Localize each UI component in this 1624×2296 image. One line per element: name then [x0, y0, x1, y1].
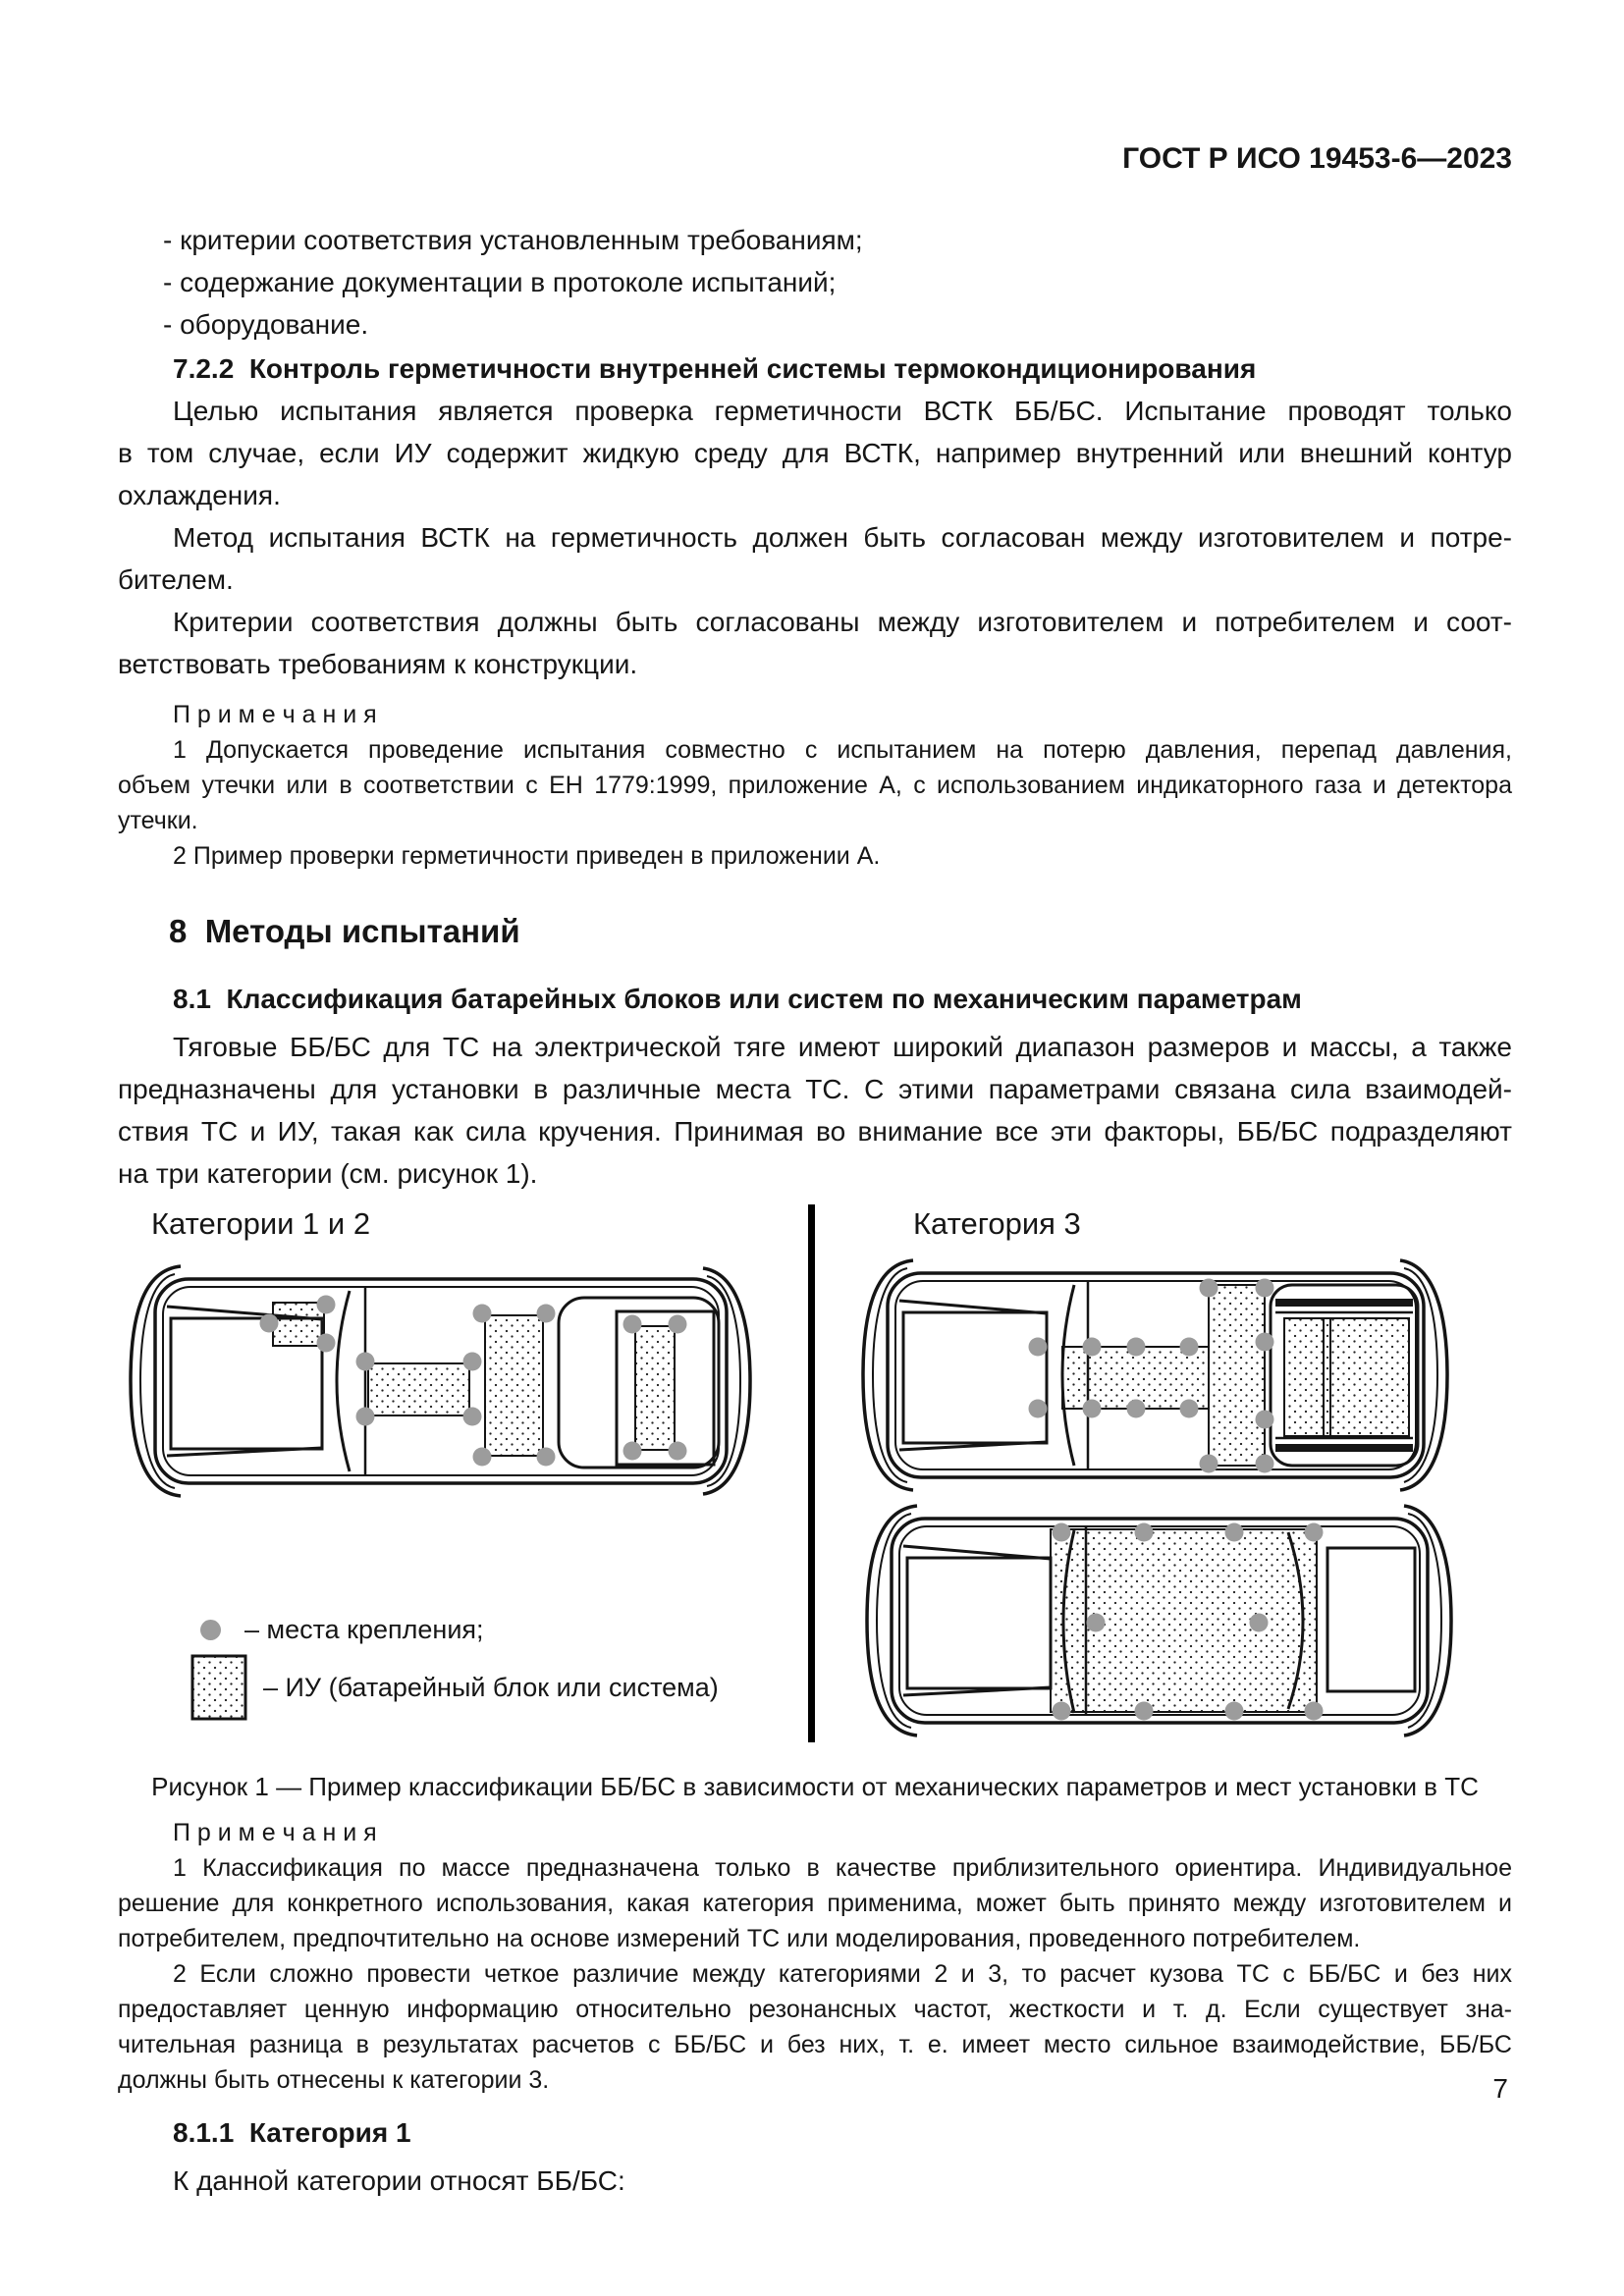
note-2: 2 Пример проверки герметичности приведен… — [118, 838, 1512, 874]
figure-label-category-3: Категория 3 — [913, 1206, 1081, 1242]
legend-mounting-points: – места крепления; — [190, 1615, 484, 1644]
figure-divider — [808, 1204, 815, 1742]
battery-area-icon — [190, 1654, 247, 1721]
car-top-view-category-3-lower — [864, 1503, 1469, 1740]
list-item: - критерии соответствия установленным тр… — [118, 219, 1512, 261]
paragraph: Критерии соответствия должны быть соглас… — [118, 601, 1512, 685]
notes-title: П р и м е ч а н и я — [118, 697, 1512, 732]
legend-label: – ИУ (батарейный блок или система) — [263, 1673, 719, 1703]
note-1: 1 Классификация по массе предназначена т… — [118, 1850, 1512, 1956]
figure-label-categories-1-2: Категории 1 и 2 — [151, 1206, 370, 1242]
paragraph: Целью испытания является проверка гермет… — [118, 390, 1512, 516]
note-1: 1 Допускается проведение испытания совме… — [118, 732, 1512, 838]
figure-1: Категории 1 и 2 Категория 3 — [118, 1204, 1512, 1754]
notes-block: П р и м е ч а н и я 1 Классификация по м… — [118, 1815, 1512, 2098]
mounting-dot-icon — [200, 1620, 221, 1640]
legend-battery-area: – ИУ (батарейный блок или система) — [190, 1654, 719, 1721]
list-item: - оборудование. — [118, 303, 1512, 346]
notes-block: П р и м е ч а н и я 1 Допускается провед… — [118, 697, 1512, 874]
paragraph: Тяговые ББ/БС для ТС на электрической тя… — [118, 1026, 1512, 1195]
list-item: - содержание документации в протоколе ис… — [118, 261, 1512, 303]
car-top-view-categories-1-2 — [126, 1263, 758, 1501]
heading-8-1-1: 8.1.1 Категория 1 — [118, 2111, 1512, 2154]
notes-title: П р и м е ч а н и я — [118, 1815, 1512, 1850]
doc-number: ГОСТ Р ИСО 19453-6—2023 — [118, 142, 1512, 178]
hyphen-list: - критерии соответствия установленным тр… — [118, 219, 1512, 346]
heading-8: 8 Методы испытаний — [118, 909, 1512, 954]
paragraph: К данной категории относят ББ/БС: — [118, 2160, 1512, 2202]
battery-block-areas — [273, 1303, 675, 1456]
heading-7-2-2: 7.2.2 Контроль герметичности внутренней … — [118, 347, 1512, 390]
note-2: 2 Если сложно провести четкое различие м… — [118, 1956, 1512, 2098]
figure-caption: Рисунок 1 — Пример классификации ББ/БС в… — [118, 1770, 1512, 1803]
car-top-view-category-3-upper — [860, 1257, 1465, 1495]
page-number: 7 — [1492, 2073, 1508, 2105]
paragraph: Метод испытания ВСТК на герметичность до… — [118, 516, 1512, 601]
legend-label: – места крепления; — [244, 1615, 484, 1645]
heading-8-1: 8.1 Классификация батарейных блоков или … — [118, 978, 1512, 1020]
document-page: ГОСТ Р ИСО 19453-6—2023 - критерии соотв… — [0, 0, 1624, 2296]
